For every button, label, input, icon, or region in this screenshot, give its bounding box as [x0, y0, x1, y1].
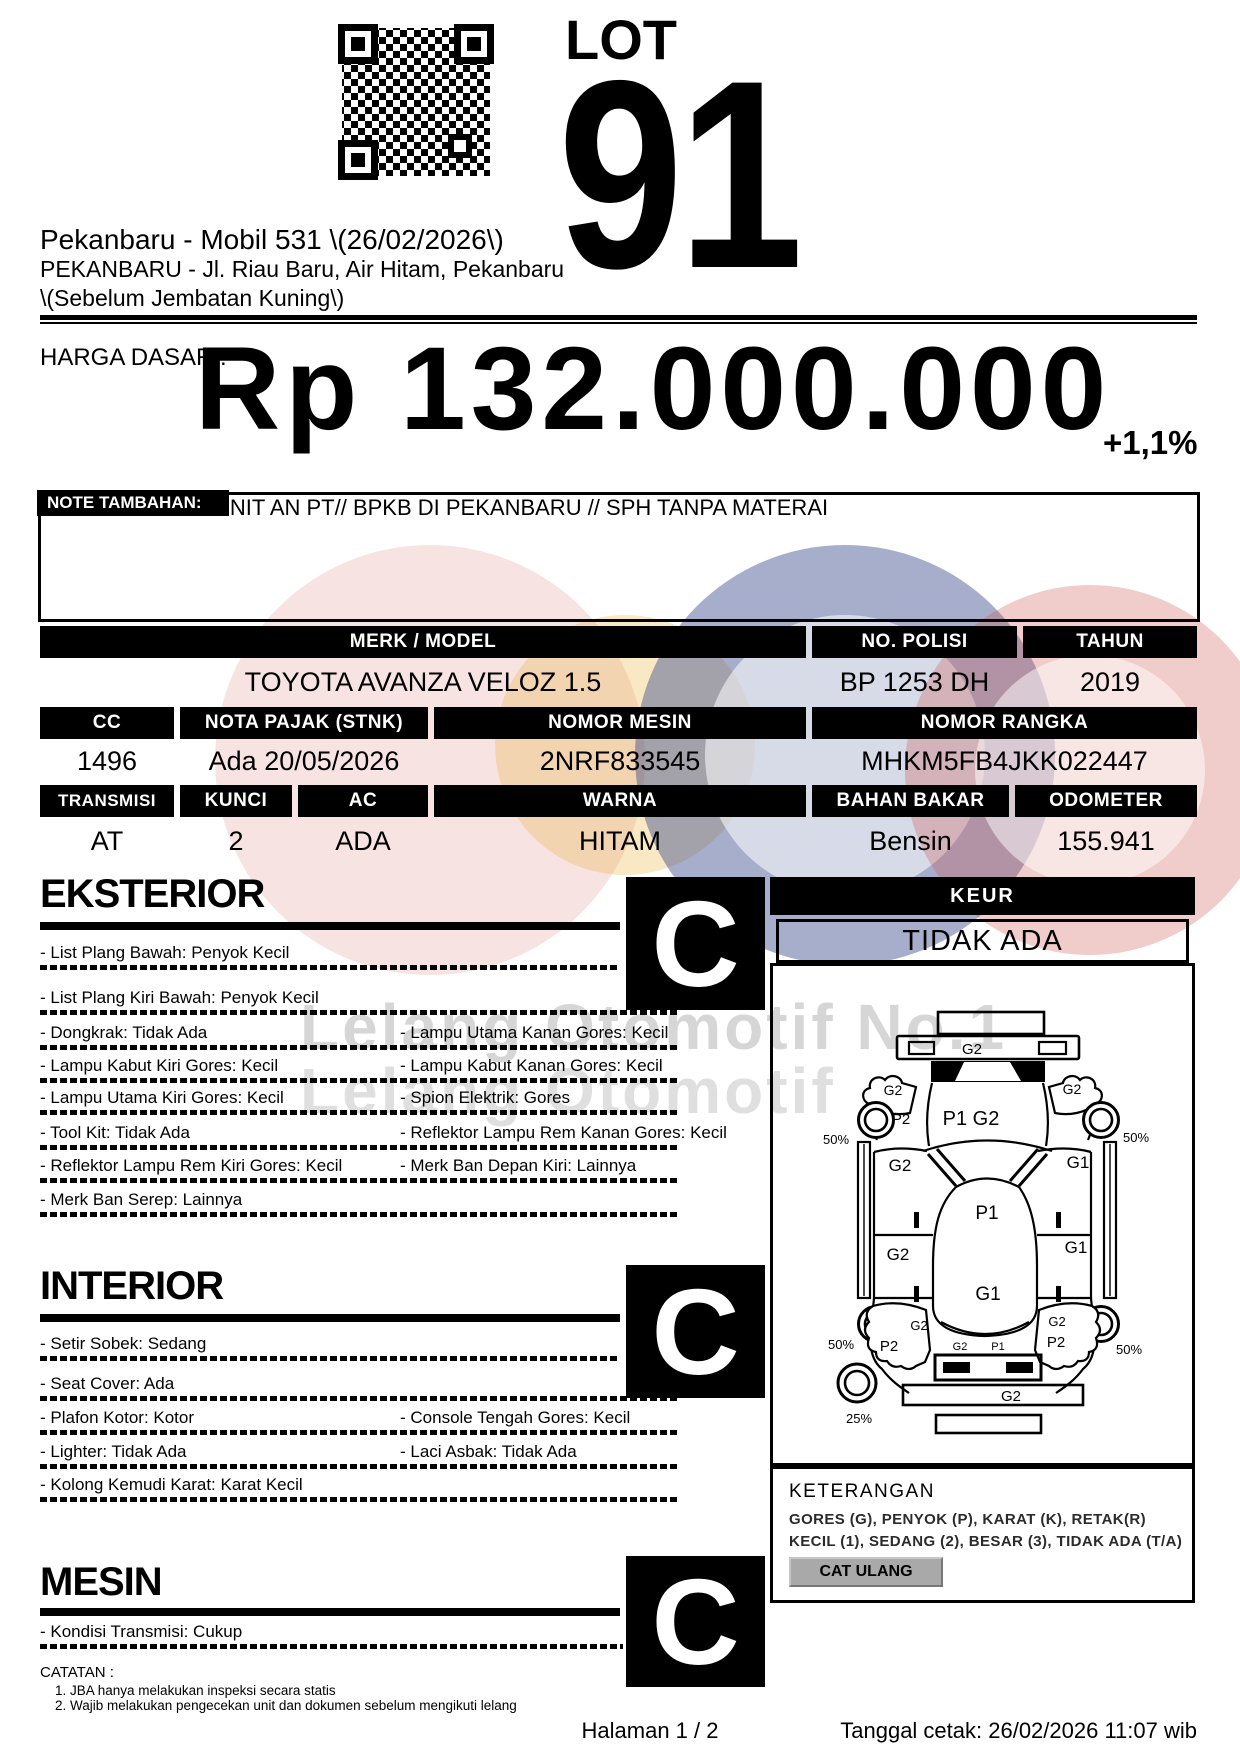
eksterior-item: - Lampu Kabut Kanan Gores: Kecil	[400, 1056, 663, 1076]
interior-item: - Console Tengah Gores: Kecil	[400, 1408, 630, 1428]
spec-value-kunci: 2	[180, 824, 292, 858]
diagram-label-roof-front: P1	[975, 1203, 998, 1224]
spec-header-kunci: KUNCI	[180, 785, 292, 817]
spec-header-nota-pajak: NOTA PAJAK (STNK)	[180, 707, 428, 739]
diagram-label-front-door-left: G2	[889, 1156, 912, 1175]
spec-value-warna: HITAM	[434, 824, 806, 858]
spec-header-transmisi: TRANSMISI	[40, 785, 174, 817]
diagram-label-rear-door-left: G2	[887, 1245, 910, 1264]
note-text: UNIT AN PT// BPKB DI PEKANBARU // SPH TA…	[214, 495, 828, 521]
eksterior-item: - Tool Kit: Tidak Ada	[40, 1123, 190, 1143]
price-change-badge: +1,1%	[1103, 424, 1198, 462]
spec-value-nomor-rangka: MHKM5FB4JKK022447	[812, 744, 1197, 778]
keterangan-title: KETERANGAN	[789, 1481, 935, 1503]
interior-item: - Lighter: Tidak Ada	[40, 1442, 186, 1462]
spec-header-tahun: TAHUN	[1023, 626, 1197, 658]
interior-item: - Laci Asbak: Tidak Ada	[400, 1442, 577, 1462]
spec-header-odometer: ODOMETER	[1015, 785, 1197, 817]
spec-header-no-polisi: NO. POLISI	[812, 626, 1017, 658]
interior-rule	[40, 1314, 620, 1322]
damage-diagram-box: G2 G2 G2 P1 G2 P2 50% 50% G2 G1 P1 G2 G1…	[770, 963, 1195, 1466]
qr-code	[330, 16, 502, 188]
diagram-label-rear-fender-right: G2	[1048, 1314, 1065, 1329]
row-divider	[40, 1356, 617, 1361]
eksterior-item: - Merk Ban Serep: Lainnya	[40, 1190, 242, 1210]
mesin-rule	[40, 1608, 620, 1616]
row-divider	[40, 1110, 680, 1115]
spec-value-nomor-mesin: 2NRF833545	[434, 744, 806, 778]
row-divider	[40, 1045, 680, 1050]
eksterior-item: - Reflektor Lampu Rem Kiri Gores: Kecil	[40, 1156, 342, 1176]
diagram-label-front-bumper: G2	[962, 1041, 982, 1058]
page-number: Halaman 1 / 2	[520, 1718, 780, 1744]
catatan-item-2: 2. Wajib melakukan pengecekan unit dan d…	[55, 1698, 517, 1713]
spec-header-nomor-mesin: NOMOR MESIN	[434, 707, 806, 739]
diagram-label-front-wheel-right-pct: 50%	[1123, 1130, 1149, 1145]
diagram-label-front-left-dent: P2	[892, 1111, 910, 1128]
section-title-eksterior: EKSTERIOR	[40, 874, 264, 914]
eksterior-item: - Reflektor Lampu Rem Kanan Gores: Kecil	[400, 1123, 727, 1143]
keterangan-box: KETERANGAN GORES (G), PENYOK (P), KARAT …	[770, 1463, 1195, 1603]
interior-item: - Plafon Kotor: Kotor	[40, 1408, 194, 1428]
spec-value-tahun: 2019	[1023, 665, 1197, 699]
diagram-label-hood: P1 G2	[943, 1108, 1000, 1130]
spec-value-ac: ADA	[298, 824, 428, 858]
diagram-label-rear-fender-left: G2	[910, 1318, 927, 1333]
diagram-label-rear-wheel-right-pct: 50%	[1116, 1342, 1142, 1357]
row-divider	[40, 1212, 680, 1217]
diagram-label-rear-fender-left-dent: P2	[880, 1338, 898, 1355]
row-divider	[40, 1145, 680, 1150]
spec-value-nota-pajak: Ada 20/05/2026	[180, 744, 428, 778]
diagram-label-rear-bumper: G2	[1001, 1388, 1021, 1405]
section-title-interior: INTERIOR	[40, 1266, 223, 1306]
eksterior-item: - Lampu Kabut Kiri Gores: Kecil	[40, 1056, 278, 1076]
catatan-item-1: 1. JBA hanya melakukan inspeksi secara s…	[55, 1683, 336, 1698]
auction-lot-sheet: Lelang Otomotif No.1 Lelang Otomotif LOT…	[0, 0, 1240, 1754]
diagram-label-roof-rear: G1	[975, 1284, 1000, 1305]
eksterior-grade: C	[626, 877, 765, 1010]
diagram-label-rear-wheel-left-pct: 50%	[828, 1337, 854, 1352]
interior-item: - Seat Cover: Ada	[40, 1374, 174, 1394]
row-divider	[40, 1178, 680, 1183]
row-divider	[40, 965, 617, 970]
spec-value-odometer: 155.941	[1015, 824, 1197, 858]
base-price-value: Rp 132.000.000	[195, 330, 1111, 448]
interior-item: - Setir Sobek: Sedang	[40, 1334, 206, 1354]
eksterior-item: - Merk Ban Depan Kiri: Lainnya	[400, 1156, 636, 1176]
keterangan-line-1: GORES (G), PENYOK (P), KARAT (K), RETAK(…	[789, 1511, 1146, 1528]
eksterior-item: - List Plang Bawah: Penyok Kecil	[40, 943, 289, 963]
row-divider	[40, 1644, 623, 1649]
row-divider	[40, 1396, 680, 1401]
mesin-grade: C	[626, 1556, 765, 1687]
spec-header-bahan-bakar: BAHAN BAKAR	[812, 785, 1009, 817]
row-divider	[40, 1464, 680, 1469]
diagram-label-front-fender-left: G2	[884, 1082, 903, 1098]
spec-value-cc: 1496	[40, 744, 174, 778]
note-label: NOTE TAMBAHAN:	[37, 490, 229, 516]
spec-header-ac: AC	[298, 785, 428, 817]
auction-address-2: \(Sebelum Jembatan Kuning\)	[40, 285, 344, 312]
auction-title: Pekanbaru - Mobil 531 \(26/02/2026\)	[40, 224, 504, 256]
interior-item: - Kolong Kemudi Karat: Karat Kecil	[40, 1475, 303, 1495]
eksterior-item: - Spion Elektrik: Gores	[400, 1088, 570, 1108]
section-title-mesin: MESIN	[40, 1562, 162, 1602]
eksterior-item: - List Plang Kiri Bawah: Penyok Kecil	[40, 988, 319, 1008]
eksterior-rule	[40, 922, 620, 930]
row-divider	[40, 1497, 680, 1502]
spec-value-transmisi: AT	[40, 824, 174, 858]
spec-header-merk-model: MERK / MODEL	[40, 626, 806, 658]
cat-ulang-badge: CAT ULANG	[789, 1557, 943, 1587]
diagram-label-front-wheel-left-pct: 50%	[823, 1132, 849, 1147]
spec-value-merk-model: TOYOTA AVANZA VELOZ 1.5	[40, 665, 806, 699]
row-divider	[40, 1010, 680, 1015]
diagram-label-rear-window-p: P1	[991, 1341, 1004, 1353]
diagram-label-rear-door-right: G1	[1065, 1238, 1088, 1257]
diagram-label-front-fender-right: G2	[1063, 1081, 1082, 1097]
spec-value-no-polisi: BP 1253 DH	[812, 665, 1017, 699]
keur-header: KEUR	[770, 877, 1195, 915]
lot-number: 91	[558, 62, 798, 287]
catatan-title: CATATAN :	[40, 1664, 114, 1681]
spec-header-warna: WARNA	[434, 785, 806, 817]
eksterior-item: - Lampu Utama Kiri Gores: Kecil	[40, 1088, 284, 1108]
diagram-label-spare-tire-pct: 25%	[846, 1411, 872, 1426]
eksterior-item: - Lampu Utama Kanan Gores: Kecil	[400, 1023, 668, 1043]
row-divider	[40, 1078, 680, 1083]
car-top-view-diagram: G2 G2 G2 P1 G2 P2 50% 50% G2 G1 P1 G2 G1…	[773, 966, 1192, 1460]
diagram-label-front-door-right: G1	[1067, 1153, 1090, 1172]
spec-value-bahan-bakar: Bensin	[812, 824, 1009, 858]
mesin-item: - Kondisi Transmisi: Cukup	[40, 1622, 242, 1642]
keterangan-line-2: KECIL (1), SEDANG (2), BESAR (3), TIDAK …	[789, 1533, 1182, 1550]
diagram-label-rear-window-g: G2	[953, 1341, 968, 1353]
auction-address: PEKANBARU - Jl. Riau Baru, Air Hitam, Pe…	[40, 256, 564, 283]
spec-header-nomor-rangka: NOMOR RANGKA	[812, 707, 1197, 739]
diagram-label-rear-fender-right-dent: P2	[1047, 1334, 1065, 1351]
spec-header-cc: CC	[40, 707, 174, 739]
print-timestamp: Tanggal cetak: 26/02/2026 11:07 wib	[780, 1718, 1197, 1744]
interior-grade: C	[626, 1265, 765, 1398]
row-divider	[40, 1430, 680, 1435]
eksterior-item: - Dongkrak: Tidak Ada	[40, 1023, 207, 1043]
keur-value: TIDAK ADA	[776, 919, 1189, 963]
